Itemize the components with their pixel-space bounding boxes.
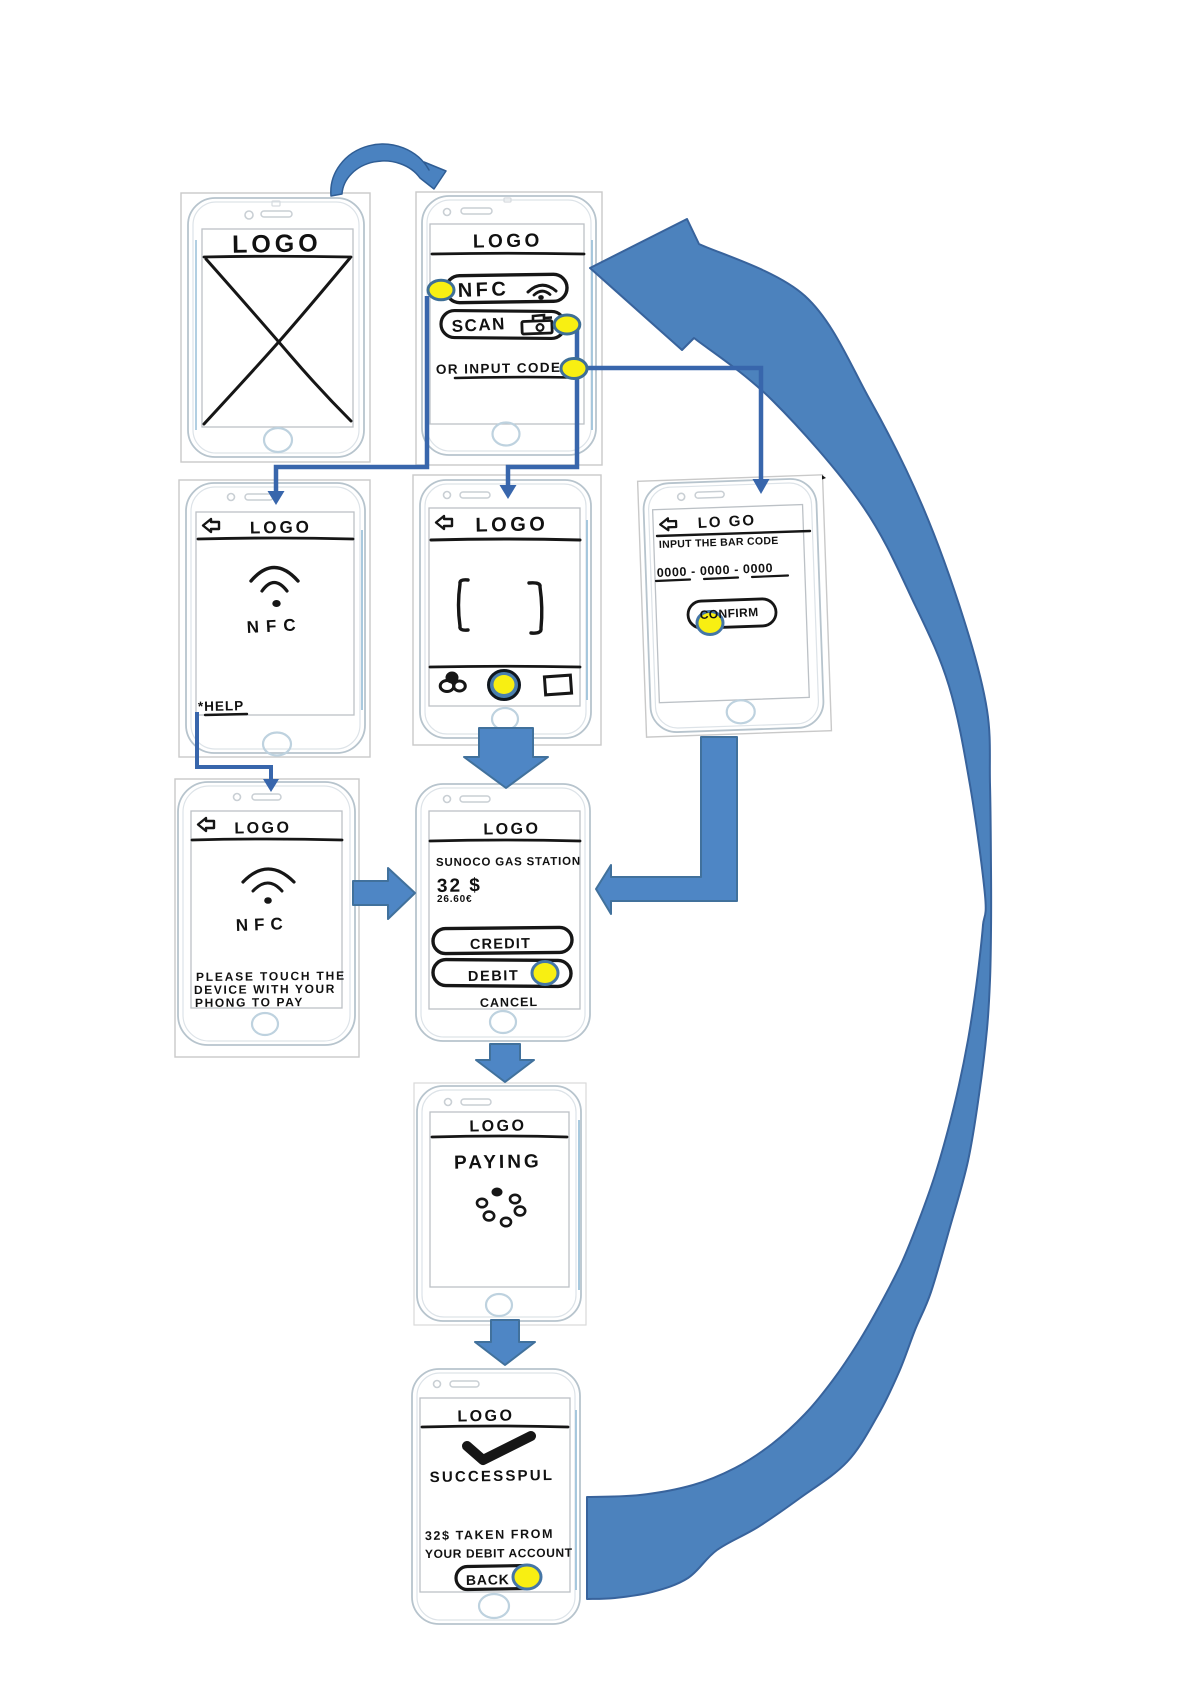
svg-text:LOGO: LOGO: [473, 230, 543, 252]
svg-text:BACK: BACK: [466, 1571, 510, 1588]
svg-text:NFC: NFC: [246, 615, 303, 637]
svg-text:NFC: NFC: [235, 914, 289, 935]
svg-text:LO GO: LO GO: [697, 512, 756, 532]
svg-text:NFC: NFC: [457, 278, 509, 302]
svg-text:SUNOCO GAS STATION: SUNOCO GAS STATION: [436, 856, 581, 869]
svg-text:SCAN: SCAN: [451, 314, 506, 336]
svg-text:LOGO: LOGO: [457, 1408, 514, 1426]
svg-text:PHONG TO PAY: PHONG TO PAY: [195, 995, 304, 1010]
svg-text:CANCEL: CANCEL: [480, 995, 538, 1010]
svg-text:26.60€: 26.60€: [437, 894, 472, 905]
svg-text:*HELP: *HELP: [198, 698, 245, 714]
svg-text:YOUR DEBIT ACCOUNT: YOUR DEBIT ACCOUNT: [425, 1546, 573, 1561]
svg-text:LOGO: LOGO: [250, 517, 312, 537]
svg-text:CREDIT: CREDIT: [470, 936, 531, 953]
svg-text:LOGO: LOGO: [475, 513, 548, 536]
svg-text:LOGO: LOGO: [234, 820, 291, 838]
svg-text:LOGO: LOGO: [232, 229, 322, 259]
svg-text:PAYING: PAYING: [454, 1151, 542, 1174]
svg-text:32$ TAKEN FROM: 32$ TAKEN FROM: [425, 1527, 554, 1543]
svg-text:SUCCESSPUL: SUCCESSPUL: [430, 1467, 555, 1486]
svg-text:LOGO: LOGO: [483, 821, 540, 839]
svg-text:DEBIT: DEBIT: [468, 968, 520, 985]
svg-text:OR INPUT CODE: OR INPUT CODE: [436, 360, 562, 377]
svg-text:LOGO: LOGO: [469, 1118, 526, 1136]
